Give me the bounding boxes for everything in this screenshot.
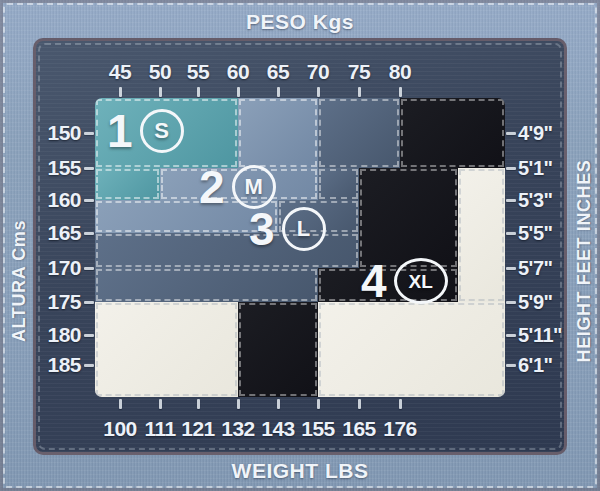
x-axis-tick-mark bbox=[358, 87, 361, 97]
x-axis-tick-label: 80 bbox=[389, 60, 411, 84]
zone-letter-circle-size-1-s: S bbox=[140, 109, 184, 153]
zone-rect-size-4-xl bbox=[359, 168, 458, 268]
x-axis-tick-label: 75 bbox=[348, 60, 370, 84]
x-axis-tick-mark bbox=[237, 87, 240, 97]
y-axis-tick-label: 155 bbox=[47, 156, 81, 180]
y2-axis-tick-mark bbox=[506, 364, 516, 367]
zone-rect-out-of-range bbox=[318, 302, 505, 397]
y2-axis-tick-mark bbox=[506, 267, 516, 270]
x-axis-tick-label: 60 bbox=[227, 60, 249, 84]
x2-axis-tick-label: 155 bbox=[301, 417, 335, 441]
zone-rect-size-2-m bbox=[238, 98, 318, 168]
x-axis-tick-label: 70 bbox=[307, 60, 329, 84]
y2-axis-tick-label: 4'9" bbox=[518, 122, 552, 145]
x-axis-tick-label: 45 bbox=[109, 60, 131, 84]
zone-label-size-4-xl: 4XL bbox=[361, 256, 448, 306]
x2-axis-tick-mark bbox=[358, 399, 361, 409]
y2-axis-tick-label: 5'7" bbox=[518, 257, 552, 280]
zone-rect-out-of-range bbox=[95, 302, 238, 397]
zone-rect-size-4-xl bbox=[400, 98, 505, 168]
zone-number-size-1-s: 1 bbox=[107, 106, 133, 156]
x-axis-tick-mark bbox=[159, 87, 162, 97]
y-axis-tick-label: 150 bbox=[47, 121, 81, 145]
x2-axis-tick-mark bbox=[277, 399, 280, 409]
x-axis-tick-label: 50 bbox=[149, 60, 171, 84]
x-axis-title-bottom: WEIGHT LBS bbox=[0, 459, 600, 483]
chart-grid: 1S2M3L4XL bbox=[95, 98, 505, 397]
x-axis-tick-label: 55 bbox=[187, 60, 209, 84]
zone-letter-circle-size-3-l: L bbox=[282, 207, 326, 251]
zone-rect-size-3-l bbox=[95, 268, 318, 302]
x2-axis-tick-label: 100 bbox=[103, 417, 137, 441]
y-axis-tick-mark bbox=[84, 364, 94, 367]
x-axis-title-top: PESO Kgs bbox=[0, 10, 600, 34]
y-axis-tick-label: 175 bbox=[47, 290, 81, 314]
zone-rect-out-of-range bbox=[458, 168, 505, 302]
y2-axis-tick-label: 5'5" bbox=[518, 222, 552, 245]
x-axis-tick-mark bbox=[197, 87, 200, 97]
y-axis-tick-label: 170 bbox=[47, 256, 81, 280]
y-axis-tick-label: 165 bbox=[47, 221, 81, 245]
zone-rect-size-3-l bbox=[318, 168, 359, 200]
zone-letter-circle-size-4-xl: XL bbox=[394, 258, 448, 304]
x2-axis-tick-mark bbox=[159, 399, 162, 409]
size-chart-image: PESO Kgs 1S2M3L4XL 451005011155121601326… bbox=[0, 0, 600, 491]
zone-number-size-2-m: 2 bbox=[199, 162, 225, 212]
y2-axis-tick-label: 5'3" bbox=[518, 189, 552, 212]
x-axis-tick-mark bbox=[399, 87, 402, 97]
x-axis-tick-label: 65 bbox=[267, 60, 289, 84]
y2-axis-tick-mark bbox=[506, 132, 516, 135]
x-axis-tick-mark bbox=[317, 87, 320, 97]
x2-axis-tick-label: 143 bbox=[261, 417, 295, 441]
x2-axis-tick-mark bbox=[399, 399, 402, 409]
y-axis-tick-mark bbox=[84, 334, 94, 337]
y2-axis-tick-mark bbox=[506, 334, 516, 337]
y-axis-tick-mark bbox=[84, 167, 94, 170]
x-axis-tick-mark bbox=[277, 87, 280, 97]
y-axis-title-right: HEIGHT FEET INCHES bbox=[574, 160, 595, 363]
zone-rect-size-1-s bbox=[95, 168, 160, 200]
zone-rect-size-4-xl bbox=[238, 302, 318, 397]
x2-axis-tick-mark bbox=[197, 399, 200, 409]
x2-axis-tick-label: 132 bbox=[221, 417, 255, 441]
zone-number-size-3-l: 3 bbox=[249, 204, 275, 254]
y2-axis-tick-mark bbox=[506, 232, 516, 235]
y2-axis-tick-label: 5'11" bbox=[518, 324, 562, 347]
x2-axis-tick-label: 165 bbox=[342, 417, 376, 441]
x2-axis-tick-mark bbox=[237, 399, 240, 409]
y-axis-tick-label: 160 bbox=[47, 188, 81, 212]
y2-axis-tick-mark bbox=[506, 167, 516, 170]
x2-axis-tick-mark bbox=[119, 399, 122, 409]
x2-axis-tick-label: 176 bbox=[383, 417, 417, 441]
x2-axis-tick-label: 121 bbox=[181, 417, 215, 441]
y-axis-tick-mark bbox=[84, 267, 94, 270]
x-axis-tick-mark bbox=[119, 87, 122, 97]
y-axis-title-left: ALTURA Cms bbox=[9, 220, 30, 342]
zone-label-size-1-s: 1S bbox=[107, 106, 184, 156]
y2-axis-tick-label: 5'9" bbox=[518, 291, 552, 314]
zone-number-size-4-xl: 4 bbox=[361, 256, 387, 306]
y-axis-tick-label: 185 bbox=[47, 353, 81, 377]
y2-axis-tick-mark bbox=[506, 199, 516, 202]
y-axis-tick-mark bbox=[84, 301, 94, 304]
y2-axis-tick-mark bbox=[506, 301, 516, 304]
y-axis-tick-label: 180 bbox=[47, 323, 81, 347]
zone-rect-size-3-l bbox=[318, 98, 400, 168]
zone-label-size-3-l: 3L bbox=[249, 204, 326, 254]
x2-axis-tick-label: 111 bbox=[144, 417, 175, 441]
y-axis-tick-mark bbox=[84, 232, 94, 235]
y-axis-tick-mark bbox=[84, 132, 94, 135]
x2-axis-tick-mark bbox=[317, 399, 320, 409]
y2-axis-tick-label: 5'1" bbox=[518, 157, 552, 180]
y-axis-tick-mark bbox=[84, 199, 94, 202]
y2-axis-tick-label: 6'1" bbox=[518, 354, 552, 377]
